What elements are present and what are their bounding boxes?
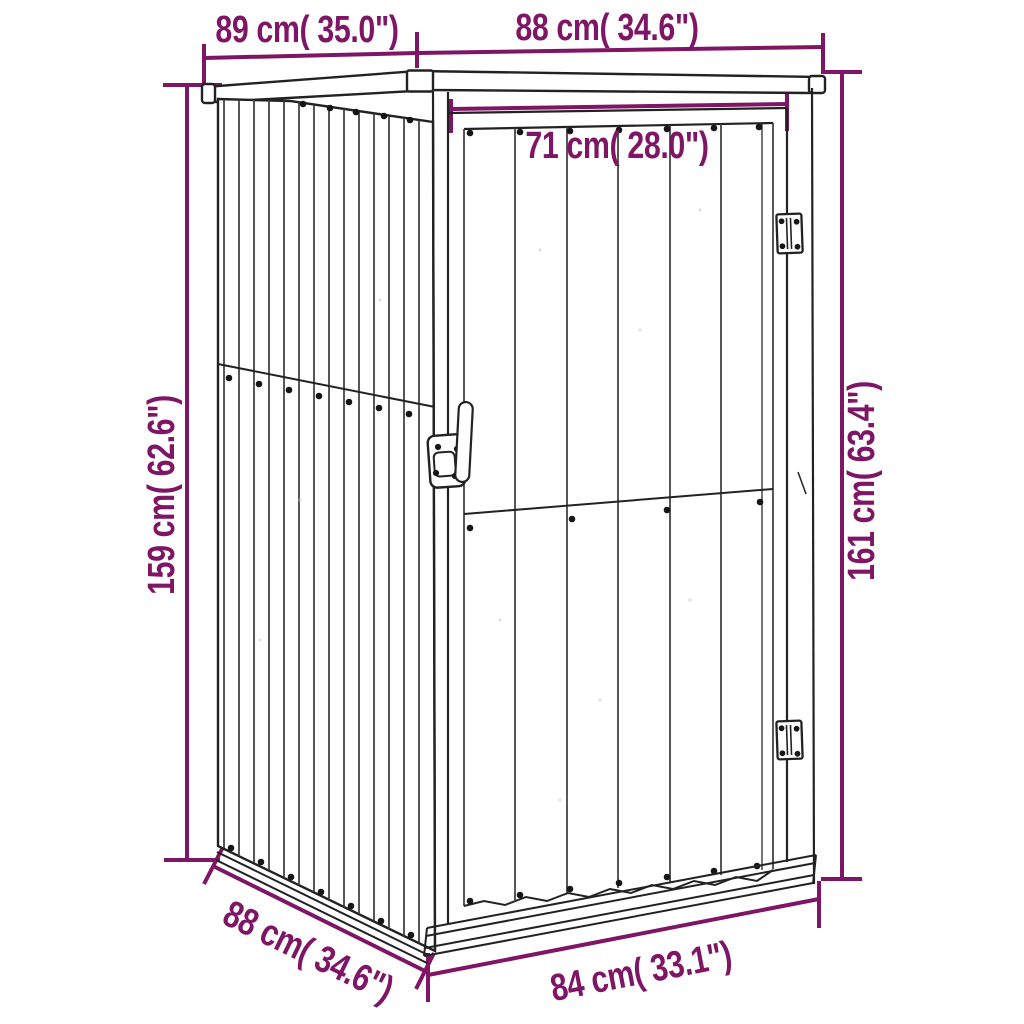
door-screws: [467, 124, 764, 905]
roof-corner-cap: [407, 71, 433, 92]
frame-detail-mark: [798, 472, 806, 494]
front-right-edge: [812, 88, 814, 884]
shed-line-art: [202, 71, 825, 964]
door-hinge-bottom: [776, 721, 802, 760]
left-side-wall: [218, 99, 435, 951]
front-wall: [433, 88, 814, 951]
door-panel-lines: [464, 123, 773, 906]
dimension-label-height-right: 161 cm( 63.4"): [843, 381, 881, 581]
dimension-label-door-width: 71 cm( 28.0"): [525, 127, 708, 165]
door-hinge-top: [776, 214, 802, 254]
roof: [202, 71, 825, 104]
handle-lever: [455, 402, 473, 483]
dimension-label-height-left: 159 cm( 62.6"): [143, 395, 181, 595]
door: [464, 123, 773, 906]
dimension-label-roof-width: 88 cm( 34.6"): [515, 9, 698, 47]
dimension-label-roof-depth: 89 cm( 35.0"): [215, 11, 398, 49]
diagram-canvas: 89 cm( 35.0") 88 cm( 34.6") 71 cm( 28.0"…: [0, 0, 1024, 1024]
